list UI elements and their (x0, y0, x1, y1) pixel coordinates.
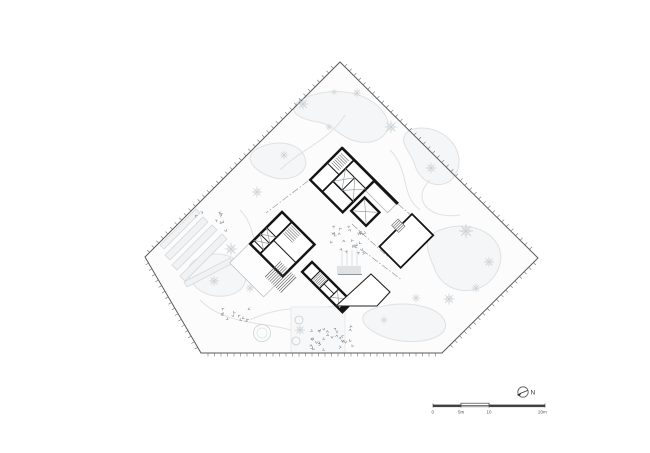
boundary-tick (479, 197, 481, 199)
boundary-tick (322, 75, 324, 77)
boundary-tick (464, 331, 466, 333)
boundary-tick (354, 73, 356, 75)
tree-icon (295, 325, 305, 335)
boundary-tick (156, 241, 158, 243)
scale-label-5m: 5m (458, 410, 465, 415)
boundary-tick (267, 130, 269, 132)
boundary-tick (520, 238, 522, 240)
boundary-tick (191, 342, 194, 344)
boundary-tick (211, 186, 213, 188)
boundary-tick (198, 199, 200, 201)
boundary-tick (525, 242, 527, 244)
boundary-tick (400, 119, 402, 121)
boundary-tick (317, 80, 319, 82)
boundary-tick (405, 124, 407, 126)
boundary-tick (377, 96, 379, 98)
boundary-tick (239, 158, 241, 160)
tree-icon (459, 224, 472, 237)
boundary-tick (179, 218, 181, 220)
boundary-tick (469, 327, 471, 329)
boundary-tick (516, 233, 518, 235)
boundary-tick (195, 347, 198, 349)
boundary-tick (244, 153, 246, 155)
boundary-tick (502, 220, 504, 222)
tree-icon (426, 163, 436, 173)
boundary-tick (188, 209, 190, 211)
boundary-tick (193, 204, 195, 206)
boundary-tick (455, 340, 457, 342)
boundary-tick (172, 308, 175, 310)
boundary-tick (146, 263, 149, 265)
boundary-tick (382, 101, 384, 103)
boundary-tick (276, 121, 278, 123)
boundary-tick (248, 149, 250, 151)
boundary-tick (170, 227, 172, 229)
boundary-tick (331, 66, 333, 68)
boundary-tick (533, 263, 535, 265)
boundary-tick (207, 190, 209, 192)
boundary-tick (483, 313, 485, 315)
boundary-tick (349, 69, 351, 71)
boundary-tick (372, 92, 374, 94)
boundary-tick (290, 107, 292, 109)
boundary-tick (450, 345, 452, 347)
boundary-tick (506, 224, 508, 226)
boundary-tick (280, 117, 282, 119)
boundary-tick (257, 140, 259, 142)
tree-icon (472, 284, 480, 292)
boundary-tick (492, 210, 494, 212)
boundary-tick (363, 82, 365, 84)
tree-icon (412, 294, 420, 302)
boundary-tick (230, 167, 232, 169)
tree-icon (280, 151, 288, 159)
tree-icon (385, 121, 397, 133)
tree-icon (353, 89, 361, 97)
north-arrow-icon: N (517, 387, 536, 397)
boundary-tick (303, 94, 305, 96)
boundary-tick (395, 114, 397, 116)
boundary-tick (152, 274, 155, 276)
boundary-tick (510, 285, 512, 287)
boundary-tick (162, 291, 165, 293)
boundary-tick (159, 286, 162, 288)
boundary-tick (225, 172, 227, 174)
boundary-tick (216, 181, 218, 183)
boundary-tick (483, 201, 485, 203)
boundary-tick (497, 215, 499, 217)
boundary-tick (511, 229, 513, 231)
boundary-tick (155, 280, 158, 282)
boundary-tick (460, 178, 462, 180)
boundary-tick (178, 319, 181, 321)
tree-icon (298, 99, 309, 110)
boundary-tick (529, 267, 531, 269)
boundary-tick (515, 281, 517, 283)
tree-icon (209, 276, 219, 286)
boundary-tick (506, 290, 508, 292)
tree-icon (325, 123, 332, 130)
site-plan-drawing: 0 5m 10 20m N (0, 0, 650, 453)
boundary-tick (524, 272, 526, 274)
boundary-tick (221, 176, 223, 178)
boundary-tick (149, 269, 152, 271)
boundary-tick (473, 322, 475, 324)
boundary-tick (496, 299, 498, 301)
boundary-tick (308, 89, 310, 91)
boundary-tick (182, 325, 185, 327)
boundary-tick (184, 213, 186, 215)
boundary-tick (175, 222, 177, 224)
boundary-tick (185, 331, 188, 333)
tree-icon (484, 257, 494, 267)
tree-icon (380, 316, 387, 323)
drawing-sheet: 0 5m 10 20m N (0, 0, 650, 453)
tree-icon (444, 294, 455, 305)
boundary-tick (474, 192, 476, 194)
boundary-tick (391, 110, 393, 112)
tree-icon (225, 243, 237, 255)
boundary-tick (459, 336, 461, 338)
boundary-tick (465, 183, 467, 185)
boundary-tick (386, 105, 388, 107)
tree-icon (331, 89, 338, 96)
boundary-tick (152, 245, 154, 247)
scale-label-20m: 20m (538, 410, 547, 415)
boundary-tick (488, 206, 490, 208)
boundary-tick (147, 250, 149, 252)
boundary-tick (166, 232, 168, 234)
boundary-tick (469, 188, 471, 190)
scale-label-10: 10 (487, 410, 493, 415)
scale-bar: 0 5m 10 20m (432, 403, 548, 414)
boundary-tick (520, 276, 522, 278)
boundary-tick (175, 314, 178, 316)
boundary-tick (345, 64, 347, 66)
boundary-tick (253, 144, 255, 146)
boundary-tick (234, 163, 236, 165)
tree-icon (252, 187, 262, 197)
boundary-tick (529, 247, 531, 249)
boundary-tick (188, 336, 191, 338)
boundary-tick (165, 297, 168, 299)
pond (254, 325, 271, 342)
boundary-tick (285, 112, 287, 114)
boundary-tick (271, 126, 273, 128)
boundary-tick (478, 317, 480, 319)
north-label: N (531, 390, 536, 397)
boundary-tick (326, 71, 328, 73)
boundary-tick (487, 308, 489, 310)
boundary-tick (313, 84, 315, 86)
boundary-tick (368, 87, 370, 89)
boundary-tick (169, 302, 172, 304)
boundary-tick (358, 78, 360, 80)
boundary-tick (202, 195, 204, 197)
boundary-tick (501, 295, 503, 297)
boundary-tick (161, 236, 163, 238)
boundary-tick (492, 304, 494, 306)
boundary-tick (262, 135, 264, 137)
scale-label-0: 0 (432, 410, 435, 415)
